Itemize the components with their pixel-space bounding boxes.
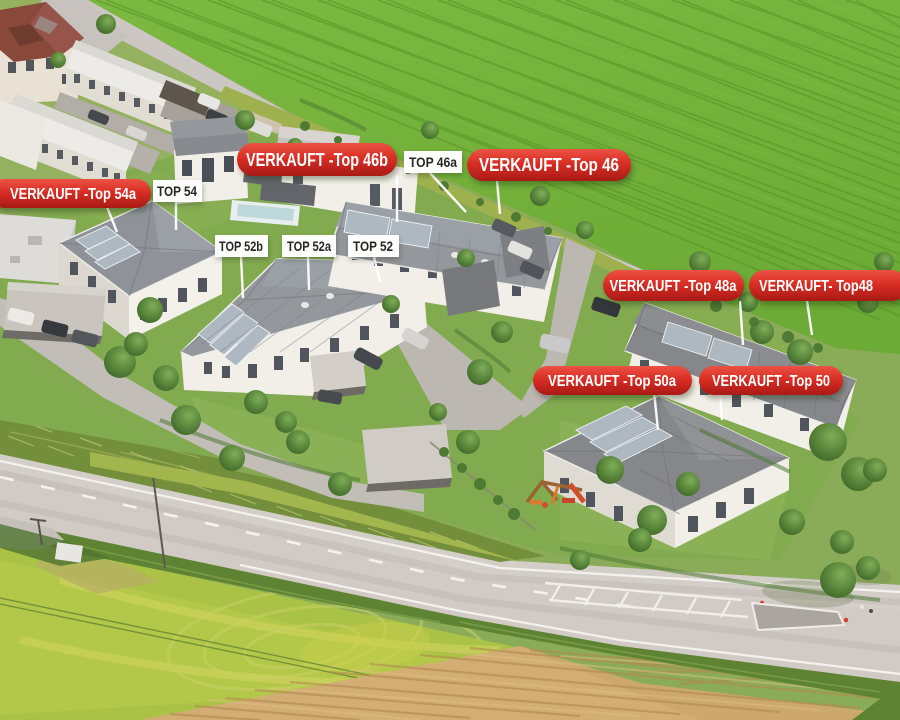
svg-text:VERKAUFT -Top 54a: VERKAUFT -Top 54a <box>10 186 136 203</box>
svg-text:TOP 54: TOP 54 <box>157 183 197 199</box>
svg-text:TOP 46a: TOP 46a <box>409 154 457 170</box>
svg-text:VERKAUFT -Top 46: VERKAUFT -Top 46 <box>479 154 619 175</box>
svg-text:TOP 52a: TOP 52a <box>287 238 331 254</box>
svg-text:TOP 52b: TOP 52b <box>219 238 263 254</box>
svg-text:VERKAUFT -Top 50a: VERKAUFT -Top 50a <box>548 373 676 390</box>
svg-text:VERKAUFT -Top 50: VERKAUFT -Top 50 <box>712 373 830 390</box>
svg-text:VERKAUFT- Top48: VERKAUFT- Top48 <box>759 278 873 295</box>
svg-text:VERKAUFT -Top 48a: VERKAUFT -Top 48a <box>610 278 737 295</box>
svg-text:VERKAUFT -Top 46b: VERKAUFT -Top 46b <box>246 149 388 170</box>
svg-text:TOP 52: TOP 52 <box>353 238 393 254</box>
